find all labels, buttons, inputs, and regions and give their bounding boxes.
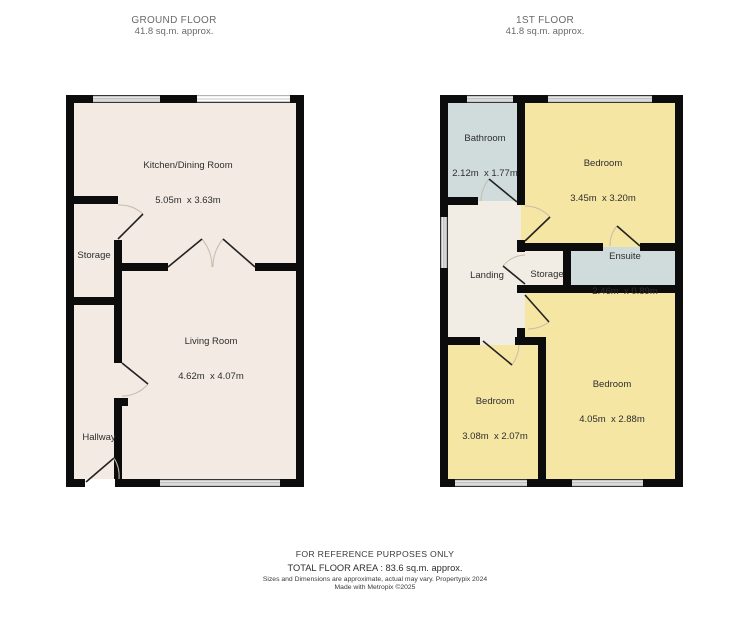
first-floor-plan-svg bbox=[440, 95, 683, 487]
first-floor-header: 1ST FLOOR 41.8 sq.m. approx. bbox=[437, 15, 653, 37]
ground-floor-header: GROUND FLOOR 41.8 sq.m. approx. bbox=[66, 15, 282, 37]
window-icon bbox=[93, 95, 160, 103]
bedroom-1-fill bbox=[521, 103, 675, 247]
total-floor-area: TOTAL FLOOR AREA : 83.6 sq.m. approx. bbox=[0, 563, 750, 573]
first-floor-plan bbox=[440, 95, 683, 487]
window-icon bbox=[572, 479, 643, 487]
ground-floor-fill bbox=[66, 95, 304, 487]
window-icon bbox=[197, 95, 290, 103]
ensuite-fill bbox=[567, 247, 675, 289]
window-icon bbox=[467, 95, 513, 103]
first-floor-title: 1ST FLOOR bbox=[437, 15, 653, 26]
made-with-text: Made with Metropix ©2025 bbox=[0, 584, 750, 591]
window-icon bbox=[440, 217, 448, 268]
first-floor-area: 41.8 sq.m. approx. bbox=[437, 26, 653, 37]
reference-note: FOR REFERENCE PURPOSES ONLY bbox=[0, 549, 750, 559]
window-icon bbox=[455, 479, 527, 487]
ground-floor-area: 41.8 sq.m. approx. bbox=[66, 26, 282, 37]
ground-floor-plan-svg bbox=[66, 95, 304, 487]
ground-floor-title: GROUND FLOOR bbox=[66, 15, 282, 26]
front-door-opening bbox=[85, 479, 115, 487]
floorplan-page: { "ground_floor": { "title": "GROUND FLO… bbox=[0, 0, 750, 643]
ground-floor-plan bbox=[66, 95, 304, 487]
disclaimer-text: Sizes and Dimensions are approximate, ac… bbox=[0, 576, 750, 583]
window-icon bbox=[160, 479, 280, 487]
window-icon bbox=[548, 95, 652, 103]
bedroom-2-fill bbox=[448, 345, 540, 479]
